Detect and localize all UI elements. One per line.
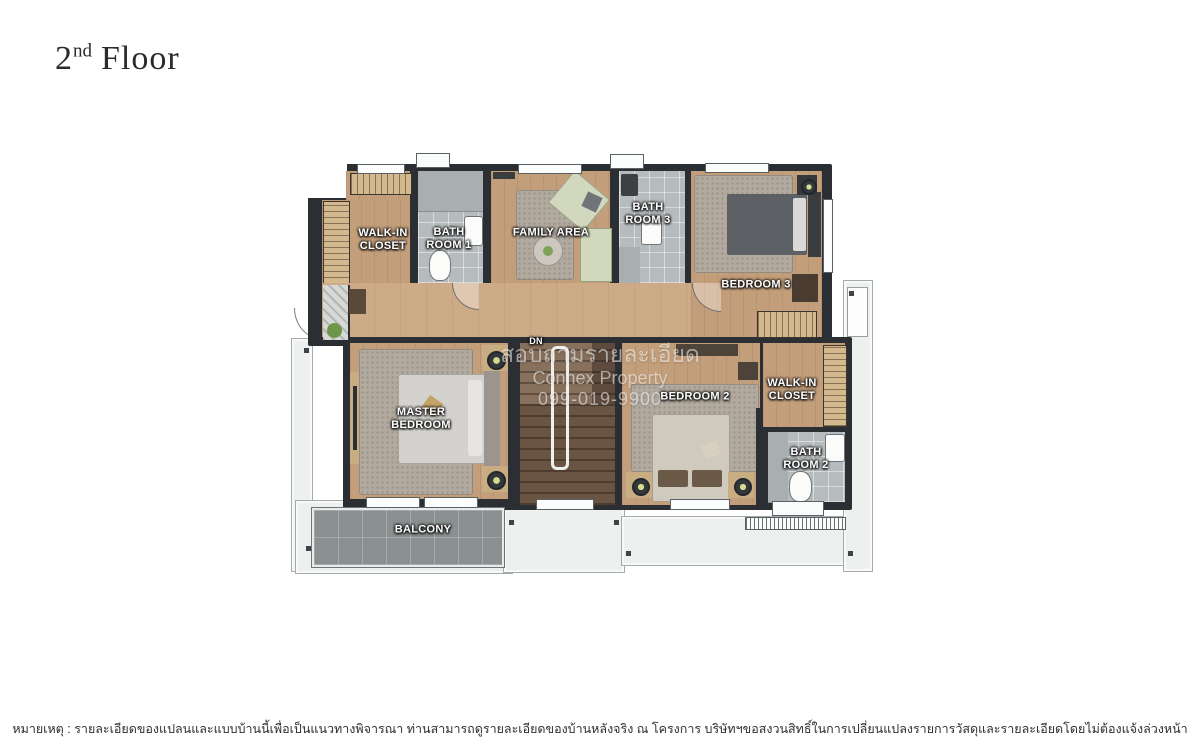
stair-handrail xyxy=(551,346,569,470)
speaker xyxy=(734,478,752,496)
plant xyxy=(543,246,553,256)
room-label-balcony: BALCONY xyxy=(363,524,483,537)
room-label-family-area: FAMILY AREA xyxy=(496,227,606,240)
plant xyxy=(327,323,342,338)
room-label-bath-room-3: BATH ROOM 3 xyxy=(624,201,672,227)
post-dot xyxy=(849,291,854,296)
window xyxy=(823,199,833,273)
room-label-walk-in-closet-1: WALK-IN CLOSET xyxy=(351,227,415,253)
toilet xyxy=(789,471,812,502)
window xyxy=(518,164,582,174)
post-dot xyxy=(626,551,631,556)
wall-notch xyxy=(294,152,347,198)
window-box xyxy=(416,153,450,168)
bath-window-sill xyxy=(772,501,824,516)
washing-machine xyxy=(621,174,638,196)
floor-plan-page: 2ndFloor xyxy=(0,0,1200,750)
balcony-door xyxy=(366,497,420,508)
room-label-bath-room-2: BATH ROOM 2 xyxy=(780,446,832,472)
bed-pillow xyxy=(658,470,688,487)
window xyxy=(670,499,730,510)
floor-ordinal: nd xyxy=(73,41,92,62)
speaker xyxy=(632,478,650,496)
shelf xyxy=(676,344,738,356)
room-label-bedroom-2: BEDROOM 2 xyxy=(640,391,750,404)
bed xyxy=(652,414,730,502)
disclaimer-text: หมายเหตุ : รายละเอียดของแปลนและแบบบ้านนี… xyxy=(0,719,1200,739)
bed-pillow xyxy=(692,470,722,487)
room-label-bath-room-1: BATH ROOM 1 xyxy=(426,226,472,252)
window xyxy=(536,499,594,510)
balcony-tiles xyxy=(312,508,504,567)
post-dot xyxy=(304,348,309,353)
tv xyxy=(353,386,357,450)
vent-strip xyxy=(745,517,846,530)
bed-pillows xyxy=(468,380,482,456)
bath-room-1-shower xyxy=(418,171,483,212)
post-dot xyxy=(614,520,619,525)
window-box xyxy=(610,154,644,169)
stairs-down-label: DN xyxy=(524,336,548,346)
cabinet xyxy=(738,362,758,380)
fan-knob xyxy=(801,179,817,195)
bed-headboard xyxy=(484,370,500,466)
wardrobe-top xyxy=(350,173,412,195)
post-dot xyxy=(509,520,514,525)
room-label-master-bedroom: MASTER BEDROOM xyxy=(385,406,457,432)
toilet xyxy=(429,250,451,281)
hallway-floor xyxy=(322,283,691,337)
deck-bottom-middle xyxy=(503,505,625,573)
window xyxy=(357,164,405,174)
bed-headboard xyxy=(808,192,821,257)
page-title: 2ndFloor xyxy=(55,40,180,78)
bedroom-3-closet xyxy=(757,311,817,338)
speaker xyxy=(487,351,506,370)
room-label-bedroom-3: BEDROOM 3 xyxy=(701,279,811,292)
tv-console xyxy=(493,172,515,179)
room-label-walk-in-closet-2: WALK-IN CLOSET xyxy=(762,377,822,403)
speaker xyxy=(487,471,506,490)
bed-pillows xyxy=(793,198,806,251)
balcony-door xyxy=(424,497,478,508)
post-dot xyxy=(848,551,853,556)
post-dot xyxy=(306,546,311,551)
floor-number: 2 xyxy=(55,40,73,77)
floor-word: Floor xyxy=(101,40,180,77)
console xyxy=(349,289,366,314)
window xyxy=(705,163,769,173)
wardrobe-left xyxy=(323,201,350,285)
wardrobe-right xyxy=(823,345,847,427)
bath-room-3-shower xyxy=(619,247,640,284)
